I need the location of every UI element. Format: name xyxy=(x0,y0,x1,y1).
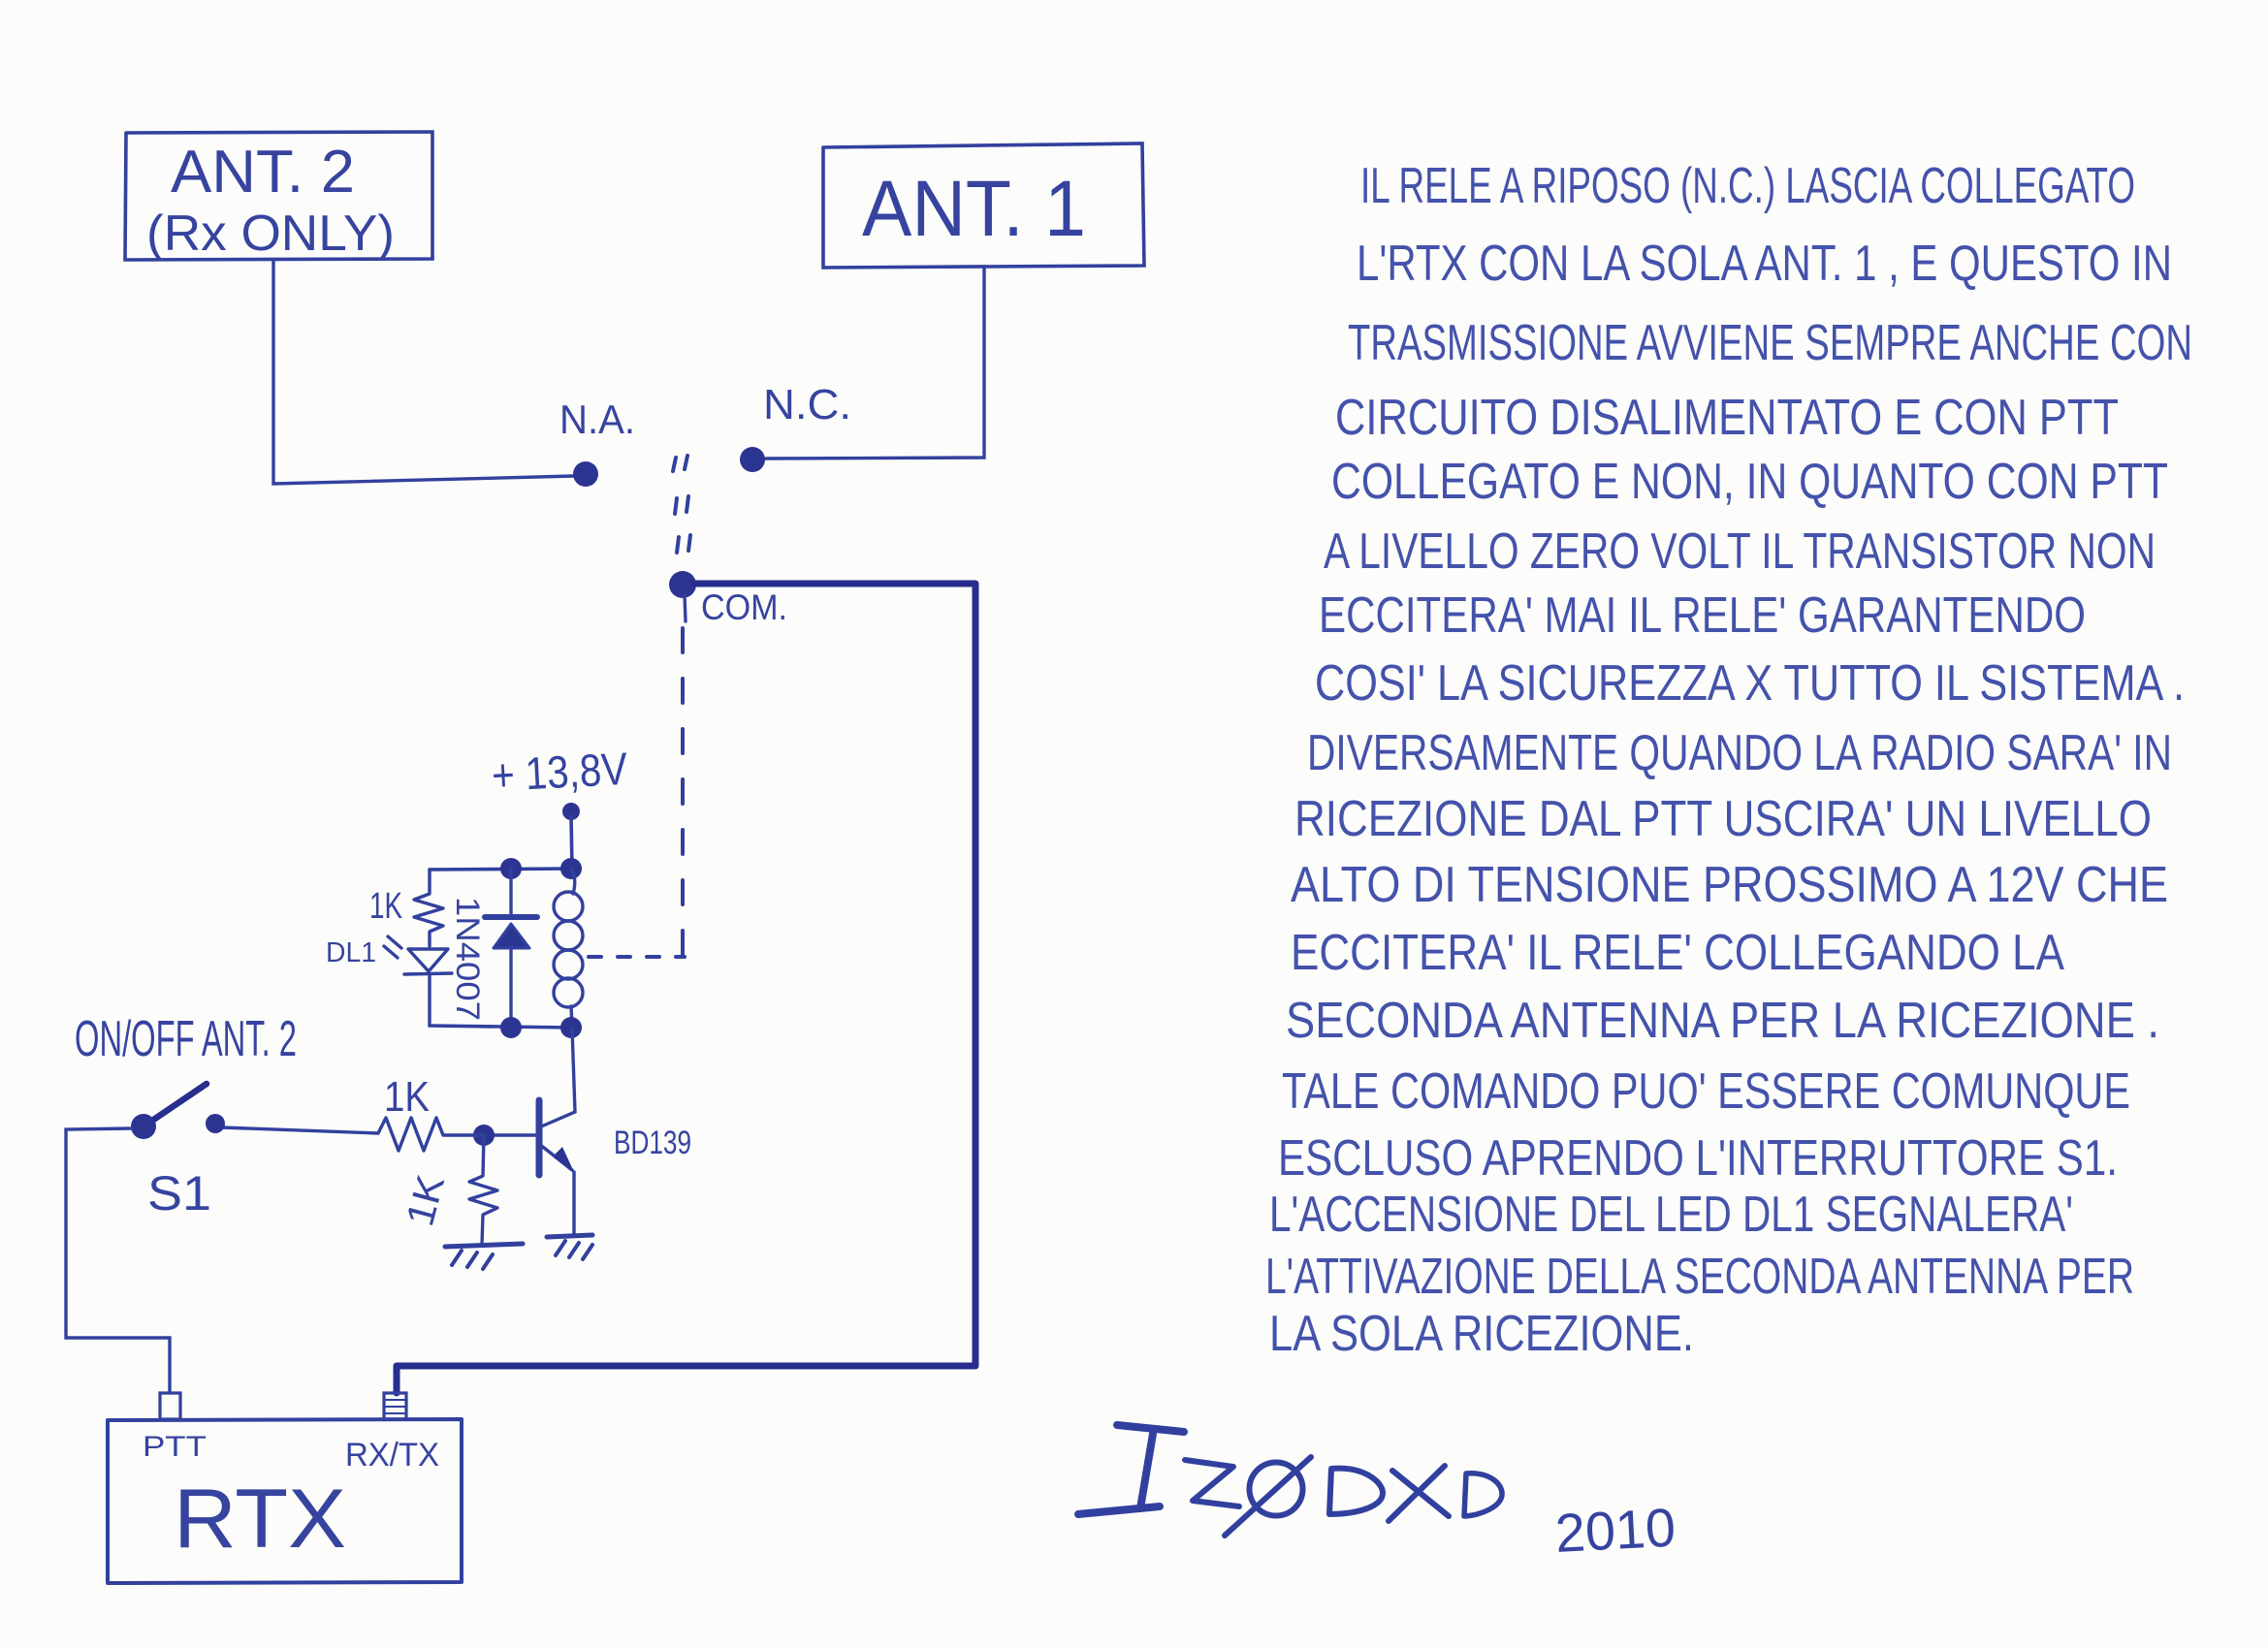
svg-text:L'ACCENSIONE DEL LED DL1 SEGNA: L'ACCENSIONE DEL LED DL1 SEGNALERA' xyxy=(1269,1187,2073,1243)
svg-text:BD139: BD139 xyxy=(614,1125,691,1161)
svg-text:ON/OFF ANT. 2: ON/OFF ANT. 2 xyxy=(75,1011,297,1067)
svg-text:L'RTX CON LA SOLA ANT. 1 , E Q: L'RTX CON LA SOLA ANT. 1 , E QUESTO IN xyxy=(1357,236,2172,292)
svg-text:PTT: PTT xyxy=(143,1431,207,1463)
svg-text:1N4007: 1N4007 xyxy=(449,897,486,1021)
svg-text:RX/TX: RX/TX xyxy=(345,1437,439,1474)
svg-text:N.C.: N.C. xyxy=(763,381,851,428)
svg-text:1K: 1K xyxy=(369,886,402,927)
svg-text:2010: 2010 xyxy=(1553,1497,1677,1564)
svg-text:ANT. 2: ANT. 2 xyxy=(171,139,355,206)
svg-text:N.A.: N.A. xyxy=(559,396,635,442)
svg-text:RICEZIONE DAL PTT USCIRA' UN L: RICEZIONE DAL PTT USCIRA' UN LIVELLO xyxy=(1294,791,2152,847)
svg-text:1K: 1K xyxy=(384,1073,430,1121)
svg-text:TALE COMANDO PUO' ESSERE COMUN: TALE COMANDO PUO' ESSERE COMUNQUE xyxy=(1282,1063,2130,1120)
svg-text:COLLEGATO E NON, IN QUANTO CON: COLLEGATO E NON, IN QUANTO CON PTT xyxy=(1331,454,2168,510)
svg-text:S1: S1 xyxy=(147,1166,211,1220)
svg-text:CIRCUITO DISALIMENTATO E CON P: CIRCUITO DISALIMENTATO E CON PTT xyxy=(1335,390,2119,446)
svg-text:COM.: COM. xyxy=(701,587,787,627)
svg-text:(Rx ONLY): (Rx ONLY) xyxy=(146,206,395,262)
svg-text:+ 13,8V: + 13,8V xyxy=(491,743,629,801)
svg-text:RTX: RTX xyxy=(174,1473,346,1566)
svg-text:IL RELE A RIPOSO (N.C.) LASCIA: IL RELE A RIPOSO (N.C.) LASCIA COLLEGATO xyxy=(1360,158,2135,214)
svg-text:COSI' LA SICUREZZA X TUTTO IL: COSI' LA SICUREZZA X TUTTO IL SISTEMA . xyxy=(1315,655,2185,712)
svg-text:A LIVELLO ZERO VOLT IL TRANSIS: A LIVELLO ZERO VOLT IL TRANSISTOR NON xyxy=(1324,523,2156,580)
svg-text:ESCLUSO APRENDO L'INTERRUTTORE: ESCLUSO APRENDO L'INTERRUTTORE S1. xyxy=(1278,1130,2118,1187)
svg-text:ALTO DI TENSIONE PROSSIMO A 12: ALTO DI TENSIONE PROSSIMO A 12V CHE xyxy=(1291,857,2168,913)
svg-text:ECCITERA' MAI IL RELE' GARANTE: ECCITERA' MAI IL RELE' GARANTENDO xyxy=(1319,587,2086,644)
svg-text:ANT. 1: ANT. 1 xyxy=(862,165,1086,253)
svg-text:DL1: DL1 xyxy=(326,937,376,968)
svg-text:DIVERSAMENTE QUANDO LA RADIO S: DIVERSAMENTE QUANDO LA RADIO SARA' IN xyxy=(1307,725,2172,781)
svg-text:ECCITERA' IL RELE' COLLEGANDO: ECCITERA' IL RELE' COLLEGANDO LA xyxy=(1291,925,2064,981)
svg-text:SECONDA ANTENNA PER LA RICEZI: SECONDA ANTENNA PER LA RICEZIONE . xyxy=(1286,993,2159,1049)
svg-text:TRASMISSIONE AVVIENE SEMPRE A: TRASMISSIONE AVVIENE SEMPRE ANCHE CON xyxy=(1348,315,2192,371)
svg-text:LA SOLA RICEZIONE.: LA SOLA RICEZIONE. xyxy=(1269,1306,1694,1362)
svg-text:L'ATTIVAZIONE DELLA SECONDA AN: L'ATTIVAZIONE DELLA SECONDA ANTENNA PER xyxy=(1265,1249,2134,1305)
